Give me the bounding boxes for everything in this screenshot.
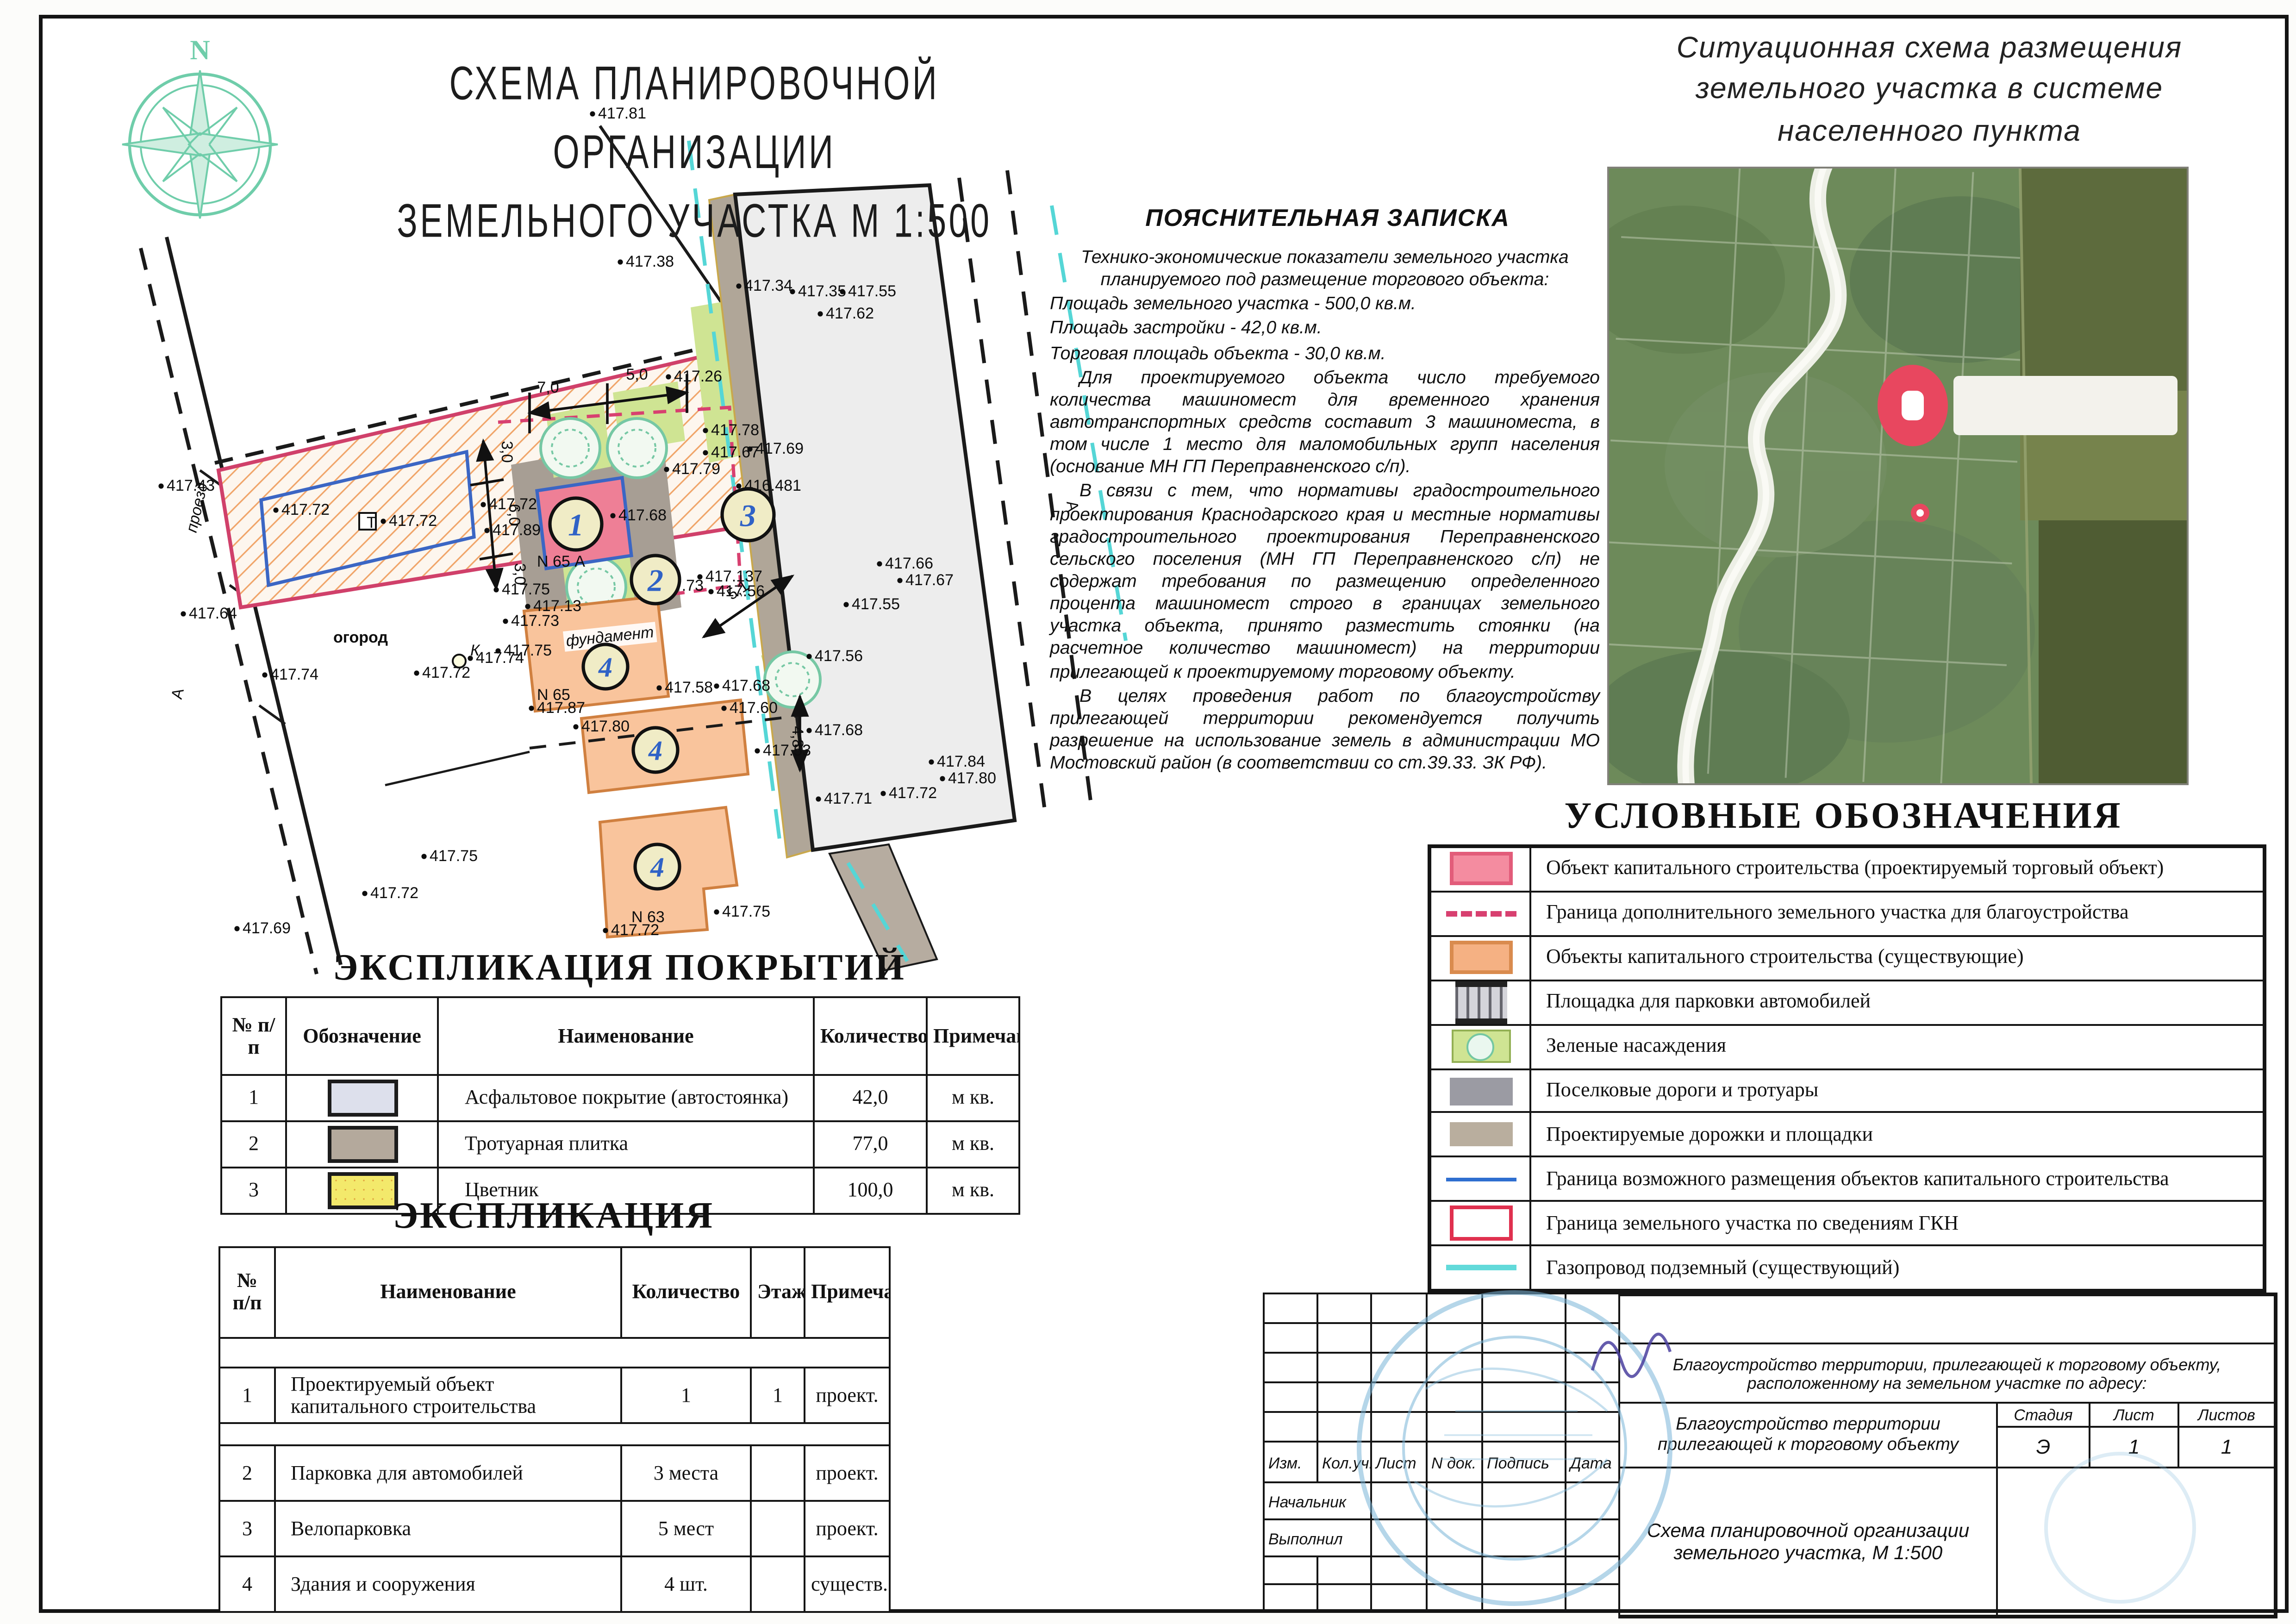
plan-label: 417.68 xyxy=(722,677,770,694)
note-paragraph: Торговая площадь объекта - 30,0 кв.м. xyxy=(1050,344,1600,366)
position-marker-number: 4 xyxy=(648,736,662,766)
tb-grid-row xyxy=(1264,1556,1619,1584)
plan-label: 417.67 xyxy=(711,443,759,461)
legend-row: Граница земельного участка по сведениям … xyxy=(1431,1200,2263,1245)
table-row: 1Асфальтовое покрытие (автостоянка)42,0м… xyxy=(221,1075,1019,1121)
plan-label: 417.35 xyxy=(798,282,846,300)
plan-label: 417.72 xyxy=(370,884,418,902)
legend-label: Граница дополнительного земельного участ… xyxy=(1531,893,2263,935)
compass-rose: N xyxy=(122,35,278,219)
legend-label: Объект капитального строительства (проек… xyxy=(1531,848,2263,891)
table-row: 4Здания и сооружения4 шт.существ. xyxy=(219,1556,890,1612)
plan-label: 417.26 xyxy=(674,368,722,385)
plan-label: 417.80 xyxy=(581,718,630,735)
plan-label: 417.75 xyxy=(722,903,770,920)
legend-row: Граница дополнительного земельного участ… xyxy=(1431,891,2263,935)
legend-row: Объекты капитального строительства (суще… xyxy=(1431,935,2263,979)
fields xyxy=(2020,169,2187,783)
path-solid xyxy=(385,752,530,785)
legend-row: Газопровод подземный (существующий) xyxy=(1431,1245,2263,1289)
column-header: № п/п xyxy=(219,1247,275,1338)
note-paragraph: Площадь застройки - 42,0 кв.м. xyxy=(1050,319,1600,342)
plan-label: 417.62 xyxy=(826,305,874,322)
tb-header-cell: Дата xyxy=(1566,1442,1619,1482)
column-header: Количество xyxy=(621,1247,751,1338)
plan-label: N 65 А xyxy=(537,553,585,570)
legend-label: Объекты капитального строительства (суще… xyxy=(1531,937,2263,979)
plan-label: 417.55 xyxy=(848,282,896,300)
plan-label: 3,0 xyxy=(511,563,529,585)
tb-sheets-value: 1 xyxy=(2177,1426,2274,1467)
plan-label: 417.72 xyxy=(281,501,330,518)
legend-row: Объект капитального строительства (проек… xyxy=(1431,848,2263,891)
compass-north-label: N xyxy=(190,35,210,65)
explication-header-row: № п/пНаименованиеКоличествоЭтаж.Примечан… xyxy=(219,1247,890,1338)
spacer-row xyxy=(219,1338,890,1368)
plan-label: 417.68 xyxy=(815,721,863,739)
plan-label: 417.75 xyxy=(430,847,478,865)
tb-grid-row xyxy=(1264,1353,1619,1382)
underground-gas-symbol xyxy=(1431,1247,1531,1289)
possible-placement-boundary-symbol xyxy=(1431,1158,1531,1200)
coverings-header-row: № п/пОбозначениеНаименованиеКоличествоПр… xyxy=(221,997,1019,1075)
note-paragraph: Технико-экономические показатели земельн… xyxy=(1050,248,1600,293)
spacer-row xyxy=(219,1423,890,1445)
plan-label: 417.67 xyxy=(905,571,954,589)
plan-label: 417.64 xyxy=(189,605,237,622)
plan-label: 417.60 xyxy=(730,699,778,717)
additional-parcel-boundary-symbol xyxy=(1431,893,1531,935)
column-header: Примечан. xyxy=(805,1247,890,1338)
legend-row: Площадка для парковки автомобилей xyxy=(1431,979,2263,1024)
title-block-right: Благоустройство территории, прилегающей … xyxy=(1618,1293,2277,1618)
coverings-table: № п/пОбозначениеНаименованиеКоличествоПр… xyxy=(220,996,1020,1215)
designed-paths-symbol xyxy=(1431,1114,1531,1156)
plan-label: 417.84 xyxy=(937,753,985,770)
tb-project: Благоустройство территории прилегающей к… xyxy=(1618,1402,1996,1467)
legend-row: Зеленые насаждения xyxy=(1431,1024,2263,1068)
legend-label: Площадка для парковки автомобилей xyxy=(1531,981,2263,1024)
position-marker-number: 3 xyxy=(740,498,756,533)
plan-label: 5,0 xyxy=(626,366,648,383)
tb-role-label: Начальник xyxy=(1264,1482,1371,1519)
plan-label: 417.69 xyxy=(243,919,291,937)
parking-area-symbol xyxy=(1431,981,1531,1024)
tb-empty-cell xyxy=(1996,1467,2274,1615)
plan-label: 417.55 xyxy=(852,595,900,613)
tb-role-label: Выполнил xyxy=(1264,1519,1371,1556)
note-paragraph: В связи с тем, что нормативы градостроит… xyxy=(1050,482,1600,685)
tb-header-cell: Подпись xyxy=(1482,1442,1566,1482)
satellite-map xyxy=(1607,167,2189,785)
plan-label: 417.72 xyxy=(389,512,437,530)
plan-label: 417.74 xyxy=(270,666,318,683)
village-roads-symbol xyxy=(1431,1069,1531,1112)
coverings-table-title: ЭКСПЛИКАЦИЯ ПОКРЫТИЙ xyxy=(220,948,1018,991)
legend-label: Граница возможного размещения объектов к… xyxy=(1531,1158,2263,1200)
tb-sheets-label: Листов xyxy=(2177,1402,2274,1426)
legend-row: Поселковые дороги и тротуары xyxy=(1431,1068,2263,1112)
note-paragraph: Для проектируемого объекта число требуем… xyxy=(1050,368,1600,481)
position-marker-number: 4 xyxy=(650,852,664,883)
plan-label: 417.66 xyxy=(885,555,933,572)
tb-grid-row xyxy=(1264,1293,1619,1323)
tb-grid-row xyxy=(1264,1382,1619,1412)
plan-label: 417.78 xyxy=(711,421,759,439)
legend-label: Граница земельного участка по сведениям … xyxy=(1531,1202,2263,1245)
plan-label: 4,8 xyxy=(789,726,806,748)
tb-role-row: Выполнил xyxy=(1264,1519,1619,1556)
legend-table: Объект капитального строительства (проек… xyxy=(1428,844,2266,1293)
tb-sheet-label: Лист xyxy=(2089,1402,2177,1426)
tb-address: Благоустройство территории, прилегающей … xyxy=(1618,1343,2274,1402)
title-block-left: Изм.Кол.уч.ЛистN док.ПодписьДатаНачальни… xyxy=(1263,1293,1620,1613)
tb-header-cell: Лист xyxy=(1371,1442,1427,1482)
column-header: Примечание xyxy=(927,997,1019,1075)
explication-table-title: ЭКСПЛИКАЦИЯ xyxy=(218,1196,889,1239)
plan-label: 3,0 xyxy=(498,441,516,462)
note-title: ПОЯСНИТЕЛЬНАЯ ЗАПИСКА xyxy=(1050,204,1605,231)
situational-title: Ситуационная схема размещения земельного… xyxy=(1615,30,2244,154)
main-title-line2: ЗЕМЕЛЬНОГО УЧАСТКА М 1:500 xyxy=(354,189,1035,258)
proposed-capital-object-symbol xyxy=(1431,848,1531,891)
legend-label: Газопровод подземный (существующий) xyxy=(1531,1247,2263,1289)
tb-header-cell: Кол.уч. xyxy=(1317,1442,1371,1482)
address-redaction-bar xyxy=(1953,376,2177,435)
tb-header-cell: N док. xyxy=(1427,1442,1482,1482)
satellite-image xyxy=(1609,169,2187,783)
table-row: 1Проектируемый объект капитального строи… xyxy=(219,1368,890,1423)
note-text: Технико-экономические показатели земельн… xyxy=(1050,248,1600,778)
tb-stage-value: Э xyxy=(1996,1426,2089,1467)
plan-label: огород xyxy=(333,629,388,646)
table-row: 2Парковка для автомобилей3 местапроект. xyxy=(219,1445,890,1501)
sw-tile xyxy=(327,1126,397,1163)
tb-grid-row xyxy=(1264,1412,1619,1442)
note-paragraph: В целях проведения работ по благоустройс… xyxy=(1050,687,1600,776)
plan-label: 417.73 xyxy=(511,612,559,630)
position-marker-number: 1 xyxy=(568,507,584,542)
column-header: Наименование xyxy=(438,997,814,1075)
column-header: Количество xyxy=(814,997,927,1075)
plan-label: А xyxy=(168,687,187,701)
plan-label: 6,0 xyxy=(505,504,523,525)
column-header: Наименование xyxy=(275,1247,621,1338)
plan-label: N 63 xyxy=(631,908,665,926)
plan-label: N 65 xyxy=(537,686,570,704)
legend-label: Зеленые насаждения xyxy=(1531,1025,2263,1068)
tb-grid-row xyxy=(1264,1323,1619,1353)
tb-sheet-value: 1 xyxy=(2089,1426,2177,1467)
tb-empty-strip xyxy=(1618,1296,2274,1343)
position-marker-number: 2 xyxy=(647,562,663,598)
plan-label: 417.79 xyxy=(672,460,720,478)
note-paragraph: Площадь земельного участка - 500,0 кв.м. xyxy=(1050,295,1600,318)
column-header: № п/п xyxy=(221,997,286,1075)
position-marker-number: 4 xyxy=(598,652,612,683)
explication-table: № п/пНаименованиеКоличествоЭтаж.Примечан… xyxy=(218,1246,891,1613)
plan-label: К xyxy=(470,642,480,659)
plan-label: 417.80 xyxy=(948,769,996,787)
tb-role-row: Начальник xyxy=(1264,1482,1619,1519)
gkn-parcel-boundary-symbol xyxy=(1431,1202,1531,1245)
plan-label: 417.56 xyxy=(815,647,863,665)
main-title: СХЕМА ПЛАНИРОВОЧНОЙ ОРГАНИЗАЦИИ ЗЕМЕЛЬНО… xyxy=(354,52,1035,258)
table-row: 3Велопарковка5 местпроект. xyxy=(219,1501,890,1556)
plan-label: 417.69 xyxy=(755,440,804,457)
legend-label: Поселковые дороги и тротуары xyxy=(1531,1069,2263,1112)
main-title-line1: СХЕМА ПЛАНИРОВОЧНОЙ ОРГАНИЗАЦИИ xyxy=(354,52,1035,189)
existing-buildings xyxy=(524,596,748,937)
drawing-sheet: N xyxy=(0,0,2296,1624)
plan-label: 417.71 xyxy=(824,790,872,807)
plan-label: 417.34 xyxy=(744,277,792,294)
plan-label: 417.68 xyxy=(618,506,667,524)
plan-label: 7,0 xyxy=(537,379,559,396)
existing-capital-objects-symbol xyxy=(1431,937,1531,979)
tb-sheet-title: Схема планировочной организации земельно… xyxy=(1618,1467,1996,1615)
sw-asphalt xyxy=(327,1080,397,1117)
legend-title: УСЛОВНЫЕ ОБОЗНАЧЕНИЯ xyxy=(1428,796,2259,839)
legend-row: Граница возможного размещения объектов к… xyxy=(1431,1156,2263,1200)
column-header: Этаж. xyxy=(751,1247,805,1338)
greenery-symbol xyxy=(1431,1025,1531,1068)
plan-label: Т xyxy=(367,514,376,531)
plan-label: 417.72 xyxy=(889,784,937,802)
legend-row: Проектируемые дорожки и площадки xyxy=(1431,1112,2263,1156)
column-header: Обозначение xyxy=(286,997,438,1075)
table-row: 2Тротуарная плитка77,0м кв. xyxy=(221,1121,1019,1168)
tb-stage-label: Стадия xyxy=(1996,1402,2089,1426)
legend-label: Проектируемые дорожки и площадки xyxy=(1531,1114,2263,1156)
tb-grid-row xyxy=(1264,1584,1619,1612)
tb-header-row: Изм.Кол.уч.ЛистN док.ПодписьДата xyxy=(1264,1442,1619,1482)
plan-label: 417.72 xyxy=(422,664,470,681)
tb-header-cell: Изм. xyxy=(1264,1442,1317,1482)
plan-label: 417.58 xyxy=(665,679,713,696)
plan-label: 417.75 xyxy=(504,642,552,659)
